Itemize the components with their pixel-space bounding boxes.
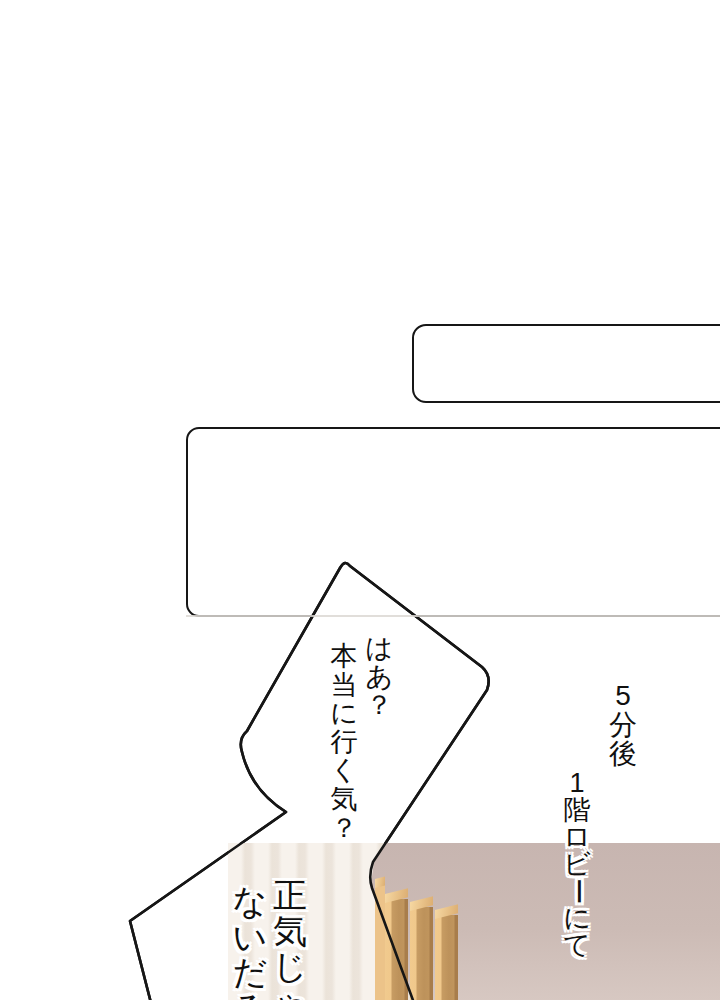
wood-slat [435, 915, 458, 1000]
wood-slat [410, 907, 433, 1000]
comic-page: はあ？ 本当に行く気？ 5分後 1階ロビーにて 正気じゃ ないだろ [0, 0, 720, 1000]
page-divider-line [186, 615, 720, 617]
wood-slat [375, 884, 385, 1000]
caption-time: 5分後 [608, 681, 638, 768]
dialogue-line-1: はあ？ [365, 634, 393, 720]
wood-slat [385, 899, 408, 1000]
narration-box-middle [186, 427, 720, 617]
overlay-text-line-1: 正気じゃ [272, 878, 308, 1000]
narration-box-top [412, 324, 720, 403]
dialogue-line-2: 本当に行く気？ [330, 642, 358, 842]
overlay-text-line-2: ないだろ [232, 884, 268, 1000]
caption-location: 1階ロビーにて [562, 770, 592, 959]
